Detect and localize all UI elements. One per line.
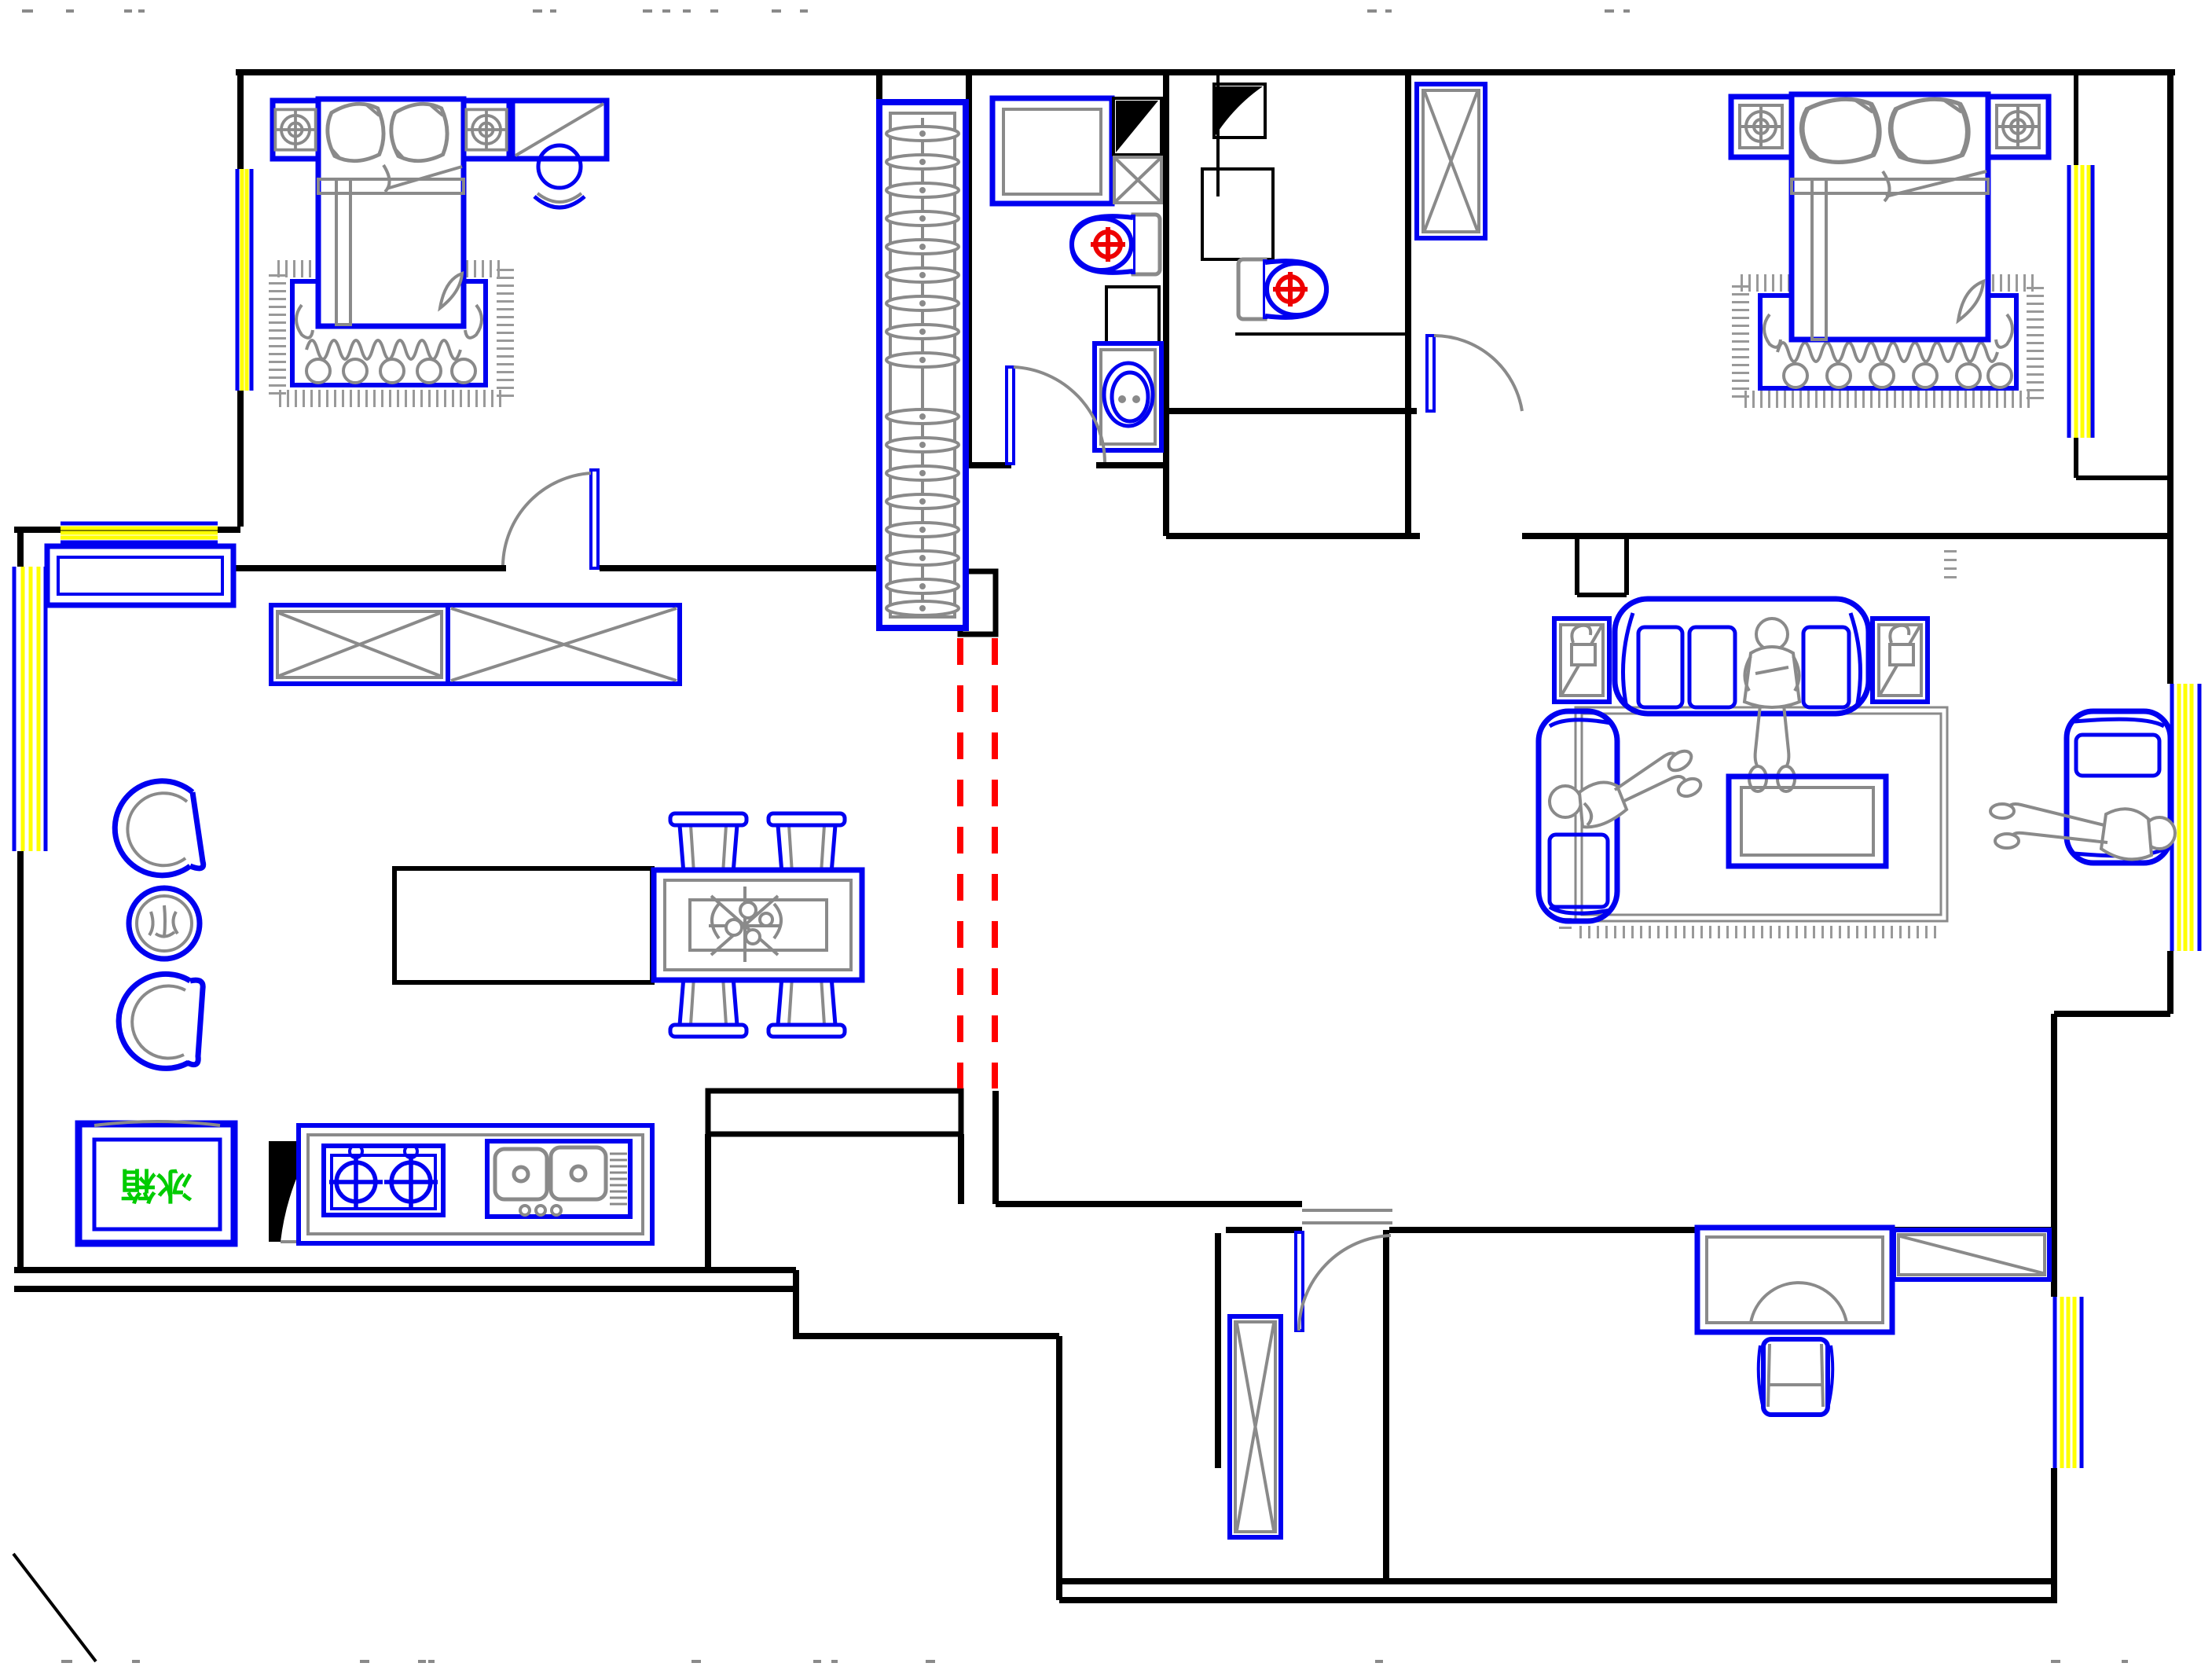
window-bedroom1-left-icon (237, 169, 251, 391)
gas-stove (324, 1145, 443, 1215)
dining-table (654, 813, 862, 1037)
kitchen: 冰箱 (79, 1122, 652, 1243)
window-study-right-icon (2055, 1297, 2082, 1468)
person-sitting (1744, 619, 1799, 791)
double-bed-2 (1792, 94, 1988, 340)
office-chair (1759, 1339, 1833, 1415)
refrigerator-label: 冰箱 (120, 1164, 193, 1206)
bookshelf (1894, 1230, 2049, 1279)
wash-basin (1095, 343, 1161, 450)
end-table-lamp-right (1873, 619, 1928, 702)
sideboard (47, 546, 233, 605)
double-sink (487, 1141, 630, 1217)
person-lounging (1550, 747, 1704, 828)
floor-plan-drawing: 冰箱 (0, 0, 2212, 1674)
x-cabinet-left (271, 605, 448, 684)
nightstand-left (273, 101, 318, 159)
floor-plan-canvas: 冰箱 (0, 0, 2212, 1674)
entry-foyer (1230, 1210, 1392, 1537)
washer-box (1106, 287, 1159, 346)
double-bed (318, 99, 464, 326)
dining-south-wall (708, 1091, 961, 1134)
living-room (1539, 550, 2175, 932)
x-cabinet-right (448, 605, 680, 684)
tub-chair-lower (119, 974, 203, 1068)
toilet-2 (1238, 259, 1326, 319)
window-bay-top-icon (61, 523, 218, 542)
nightstand-2-left (1731, 97, 1792, 157)
threshold (1302, 1210, 1392, 1223)
storage-box (1202, 169, 1273, 259)
demolition-dashed-lines (960, 638, 995, 1088)
tub-chair-upper (115, 781, 203, 876)
bedroom-2 (1417, 84, 2049, 399)
nightstand-right (464, 101, 509, 159)
entry-door-icon (1296, 1232, 1391, 1331)
exhaust-box-icon (1114, 157, 1161, 203)
vent-duct (1113, 98, 1161, 155)
window-bay-left-icon (14, 567, 46, 851)
door-bedroom2-icon (1427, 336, 1522, 411)
desk (1697, 1228, 1892, 1332)
leader-line (13, 1554, 96, 1661)
person-lying (1990, 804, 2175, 859)
bedroom-master (273, 99, 607, 568)
nightstand-2-right (1988, 97, 2049, 157)
round-plant-table (129, 888, 200, 959)
bar-counter (394, 868, 652, 982)
vent-duct-2 (1214, 84, 1265, 138)
shower-grid (992, 98, 1112, 204)
toilet-1 (1072, 215, 1160, 274)
door-bedroom1-icon (503, 470, 598, 568)
window-living-right-icon (2172, 684, 2199, 951)
window-bedroom2-right-icon (2069, 165, 2093, 438)
door-bath1-icon (1007, 367, 1105, 464)
refrigerator: 冰箱 (79, 1122, 234, 1243)
tall-wardrobe (1417, 84, 1485, 238)
bathroom-1 (992, 98, 1161, 464)
sofa-main (1615, 599, 1869, 714)
dining-room (47, 546, 862, 1068)
study (1697, 1228, 2049, 1415)
hall-closet (879, 102, 966, 628)
end-table-lamp-left (1554, 619, 1609, 702)
shoe-cabinet (1230, 1316, 1281, 1537)
wardrobe-cabinet (512, 101, 607, 159)
